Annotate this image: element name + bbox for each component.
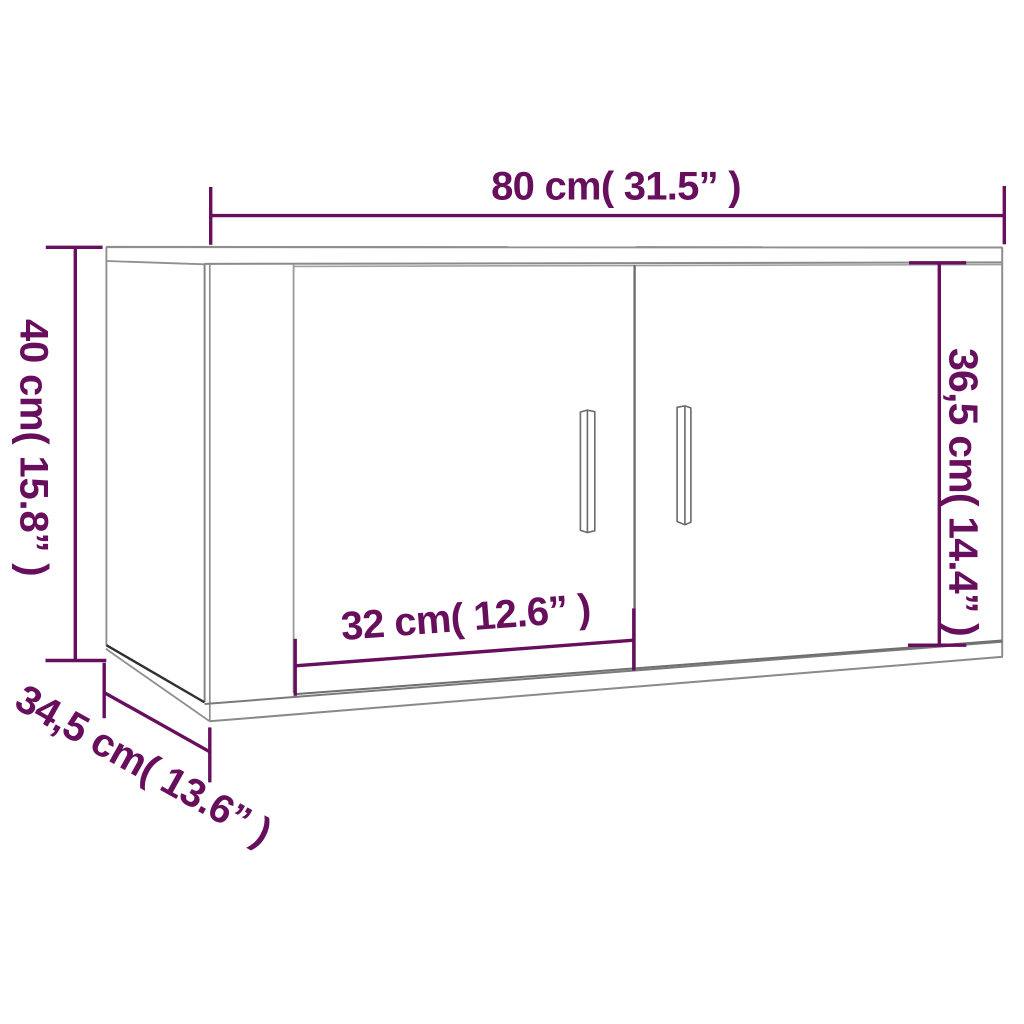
- svg-text:40 cm( 15.8” ): 40 cm( 15.8” ): [12, 319, 56, 576]
- svg-text:36,5 cm( 14.4” ): 36,5 cm( 14.4” ): [941, 348, 987, 636]
- svg-text:80 cm( 31.5” ): 80 cm( 31.5” ): [491, 165, 741, 209]
